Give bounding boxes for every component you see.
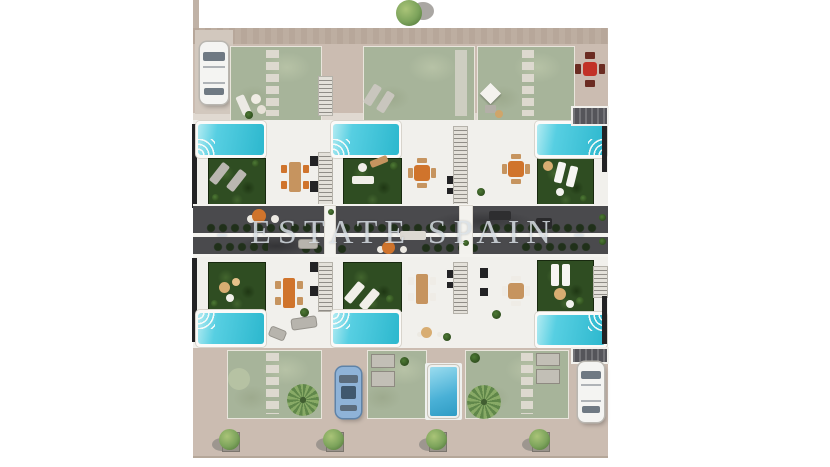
tree-icon [426,429,447,450]
white-car-icon [578,362,604,422]
plant-icon [386,295,394,303]
pouf [554,288,566,300]
pouf [566,300,574,308]
tree-icon [219,429,240,450]
roof-stairs [318,76,333,116]
plant-icon [212,194,219,201]
shrub [228,368,250,390]
blue-car-icon [336,367,361,418]
site-plan-render: - ESTATE SPAIN - [0,0,830,467]
stairs [318,262,333,312]
ground-pool [430,367,457,416]
palm-tree-icon [467,385,501,419]
stepping-stones [521,353,533,414]
kitchen-counter [480,288,488,296]
lounger [352,176,374,184]
wall [602,126,607,172]
pergola [571,106,609,126]
palm-tree-icon [287,384,319,416]
tree-icon [323,429,344,450]
pool-lower-1 [198,313,264,344]
pool-upper-3 [537,124,605,155]
planter [371,354,395,368]
pool-lower-3 [537,315,605,345]
stairs [453,126,468,209]
pool-lower-2 [333,313,399,344]
pouf [232,278,240,286]
planter [536,369,560,384]
stairs [453,262,468,314]
stepping-stones [266,353,279,414]
plant-icon [252,160,259,167]
top-roof-edge [193,28,608,44]
planter [536,353,560,366]
stepping-stones [266,50,279,116]
lounger [562,264,570,286]
plant-icon [576,297,584,305]
pouf [219,282,230,293]
pouf [556,188,564,196]
pouf [543,161,553,171]
plant-icon [211,300,218,307]
white-car-icon [200,42,228,104]
stairs [593,266,608,298]
pouf [358,163,367,172]
lounger [551,264,559,286]
kitchen-counter [480,268,488,278]
tree-icon [396,0,422,26]
roof-pouf [257,105,266,114]
stepping-stones [522,50,534,116]
stairs [318,152,333,209]
plant-icon [400,357,409,366]
planter [371,371,395,387]
plant-icon [300,308,309,317]
pool-upper-2 [333,124,399,155]
plant-icon [390,162,398,170]
pool-upper-1 [198,124,264,155]
plant-icon [492,310,501,319]
plant-icon [477,188,485,196]
plant-icon [470,353,480,363]
round-table-set [421,327,432,338]
wall [602,296,607,344]
plant-icon [443,333,451,341]
roof-path [455,50,467,116]
roof-pouf [495,110,503,118]
plant-icon [245,111,253,119]
watermark-text: - ESTATE SPAIN - [193,214,615,254]
roof-pouf [251,94,261,104]
top-left-wall-stub [193,0,199,28]
tree-icon [529,429,550,450]
plant-icon [580,195,587,202]
pouf [226,294,234,302]
